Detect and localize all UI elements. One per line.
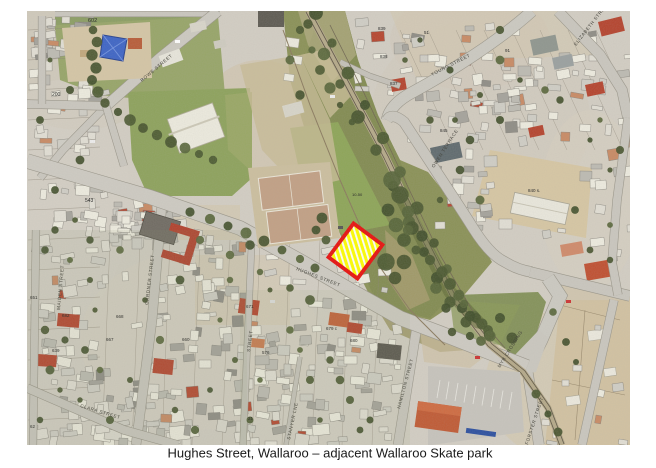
svg-text:Hughes Street, Wallaroo – adja: Hughes Street, Wallaroo – adjacent Walla…: [168, 446, 493, 461]
